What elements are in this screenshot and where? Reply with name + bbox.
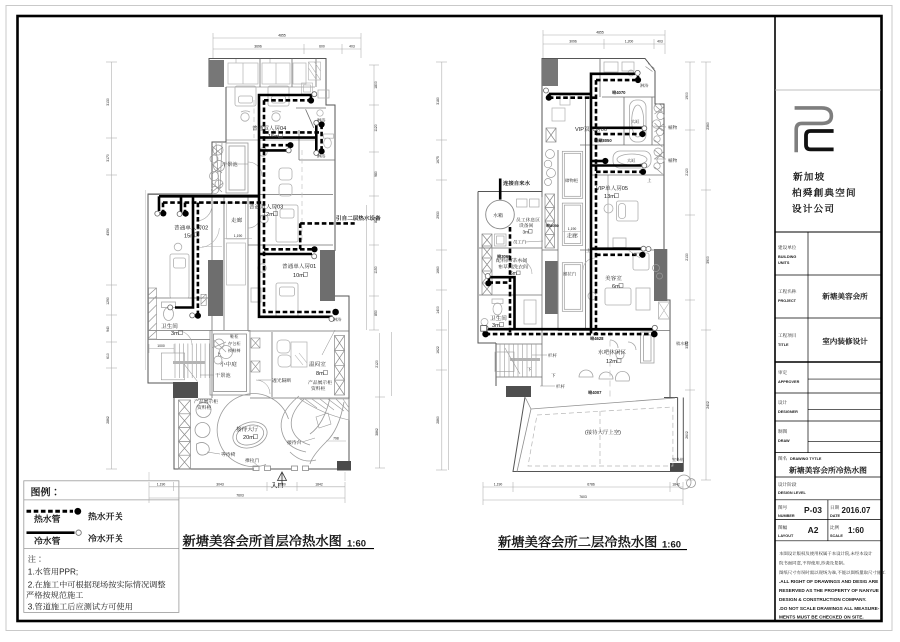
svg-text:2016.07: 2016.07 bbox=[842, 505, 871, 516]
svg-text:P-03: P-03 bbox=[804, 504, 822, 516]
svg-text:798: 798 bbox=[333, 436, 339, 441]
svg-text:DESIGNER: DESIGNER bbox=[778, 410, 798, 415]
svg-text:工程名称: 工程名称 bbox=[778, 289, 797, 295]
svg-text:下: 下 bbox=[551, 373, 556, 379]
svg-text:600: 600 bbox=[319, 44, 325, 49]
svg-text:上: 上 bbox=[586, 248, 591, 254]
svg-text:RESERVED AS THE PROPERTY OF NA: RESERVED AS THE PROPERTY OF NANYUE bbox=[779, 588, 879, 594]
svg-text:8m: 8m bbox=[316, 369, 324, 377]
svg-text:暗4007: 暗4007 bbox=[588, 390, 602, 396]
svg-text:1600: 1600 bbox=[278, 481, 286, 486]
svg-text:1842: 1842 bbox=[315, 481, 323, 486]
svg-text:3332: 3332 bbox=[684, 341, 689, 349]
svg-text:PROJECT: PROJECT bbox=[778, 299, 797, 304]
svg-text:鞋柜: 鞋柜 bbox=[230, 334, 239, 340]
svg-text:2860: 2860 bbox=[435, 416, 440, 424]
svg-text:VIP双人房06: VIP双人房06 bbox=[575, 125, 607, 133]
svg-text:980: 980 bbox=[373, 171, 378, 177]
svg-text:存包柜: 存包柜 bbox=[228, 341, 241, 347]
svg-text:图幅: 图幅 bbox=[778, 525, 788, 531]
svg-text:3862: 3862 bbox=[374, 428, 379, 436]
svg-text:普通单人房01: 普通单人房01 bbox=[282, 262, 316, 270]
svg-text:柏舜創典空间: 柏舜創典空间 bbox=[792, 185, 857, 199]
svg-text:普通双人房04: 普通双人房04 bbox=[252, 124, 286, 132]
svg-text:干景池: 干景池 bbox=[222, 161, 238, 168]
svg-text:推拉门: 推拉门 bbox=[245, 457, 260, 464]
svg-text:403: 403 bbox=[657, 39, 663, 44]
svg-text:2120: 2120 bbox=[374, 360, 379, 368]
svg-text:2360: 2360 bbox=[705, 122, 710, 130]
svg-text:7603: 7603 bbox=[579, 494, 587, 499]
svg-text:1:60: 1:60 bbox=[662, 537, 681, 551]
svg-text:淋浴: 淋浴 bbox=[640, 83, 649, 89]
svg-text:4855: 4855 bbox=[278, 33, 286, 38]
svg-text:3.管道施工后应测试方可使用: 3.管道施工后应测试方可使用 bbox=[28, 601, 133, 612]
svg-text:走廊: 走廊 bbox=[231, 216, 243, 224]
svg-text:暗8050: 暗8050 bbox=[546, 223, 560, 229]
svg-text:15m: 15m bbox=[268, 132, 279, 140]
svg-text:12m: 12m bbox=[263, 210, 274, 218]
svg-text:3m: 3m bbox=[523, 229, 530, 236]
svg-text:3696: 3696 bbox=[254, 44, 262, 49]
svg-text:DESIGN & CONSTRUCTION COMPANY.: DESIGN & CONSTRUCTION COMPANY. bbox=[779, 597, 867, 603]
svg-text:4390: 4390 bbox=[105, 228, 110, 236]
svg-text:4855: 4855 bbox=[596, 30, 604, 35]
svg-text:.DO NOT SCALE DRAWINGS ALL MEA: .DO NOT SCALE DRAWINGS ALL MEASURE- bbox=[779, 606, 880, 612]
svg-text:BUILDING: BUILDING bbox=[778, 255, 796, 260]
svg-text:1,190: 1,190 bbox=[494, 482, 503, 487]
svg-text:1,200: 1,200 bbox=[625, 39, 634, 44]
svg-text:1290: 1290 bbox=[105, 297, 110, 305]
svg-text:940: 940 bbox=[105, 326, 110, 332]
svg-text:暗4070: 暗4070 bbox=[612, 90, 626, 96]
svg-text:室内装修设计: 室内装修设计 bbox=[822, 336, 868, 347]
svg-text:审定: 审定 bbox=[778, 370, 788, 376]
svg-text:MENTS MUST BE CHECKED ON SITE.: MENTS MUST BE CHECKED ON SITE. bbox=[779, 615, 864, 621]
svg-text:暗3060: 暗3060 bbox=[497, 254, 511, 260]
svg-text:13m: 13m bbox=[604, 192, 615, 200]
svg-text:热水开关: 热水开关 bbox=[88, 510, 123, 523]
svg-text:2930: 2930 bbox=[435, 211, 440, 219]
svg-text:15m: 15m bbox=[184, 231, 195, 239]
svg-text:建设单位: 建设单位 bbox=[778, 245, 797, 251]
svg-text:2862: 2862 bbox=[105, 416, 110, 424]
svg-text:日期: 日期 bbox=[830, 505, 840, 511]
svg-text:美容室: 美容室 bbox=[605, 274, 622, 282]
svg-text:上: 上 bbox=[647, 178, 652, 184]
svg-text:淋浴: 淋浴 bbox=[317, 118, 326, 124]
svg-text:800: 800 bbox=[373, 217, 378, 223]
svg-text:栏杆: 栏杆 bbox=[556, 384, 566, 390]
svg-text:工程项目: 工程项目 bbox=[778, 333, 796, 339]
svg-text:6m: 6m bbox=[510, 270, 517, 277]
svg-text:3096: 3096 bbox=[569, 39, 577, 44]
svg-text:DRAWING TYTLE: DRAWING TYTLE bbox=[790, 457, 822, 462]
svg-text:水吧休闲区: 水吧休闲区 bbox=[598, 348, 626, 356]
svg-text:大缸: 大缸 bbox=[631, 119, 640, 125]
svg-text:下: 下 bbox=[527, 367, 532, 373]
svg-text:DRAW: DRAW bbox=[778, 439, 790, 444]
svg-text:2402: 2402 bbox=[705, 401, 710, 409]
svg-text:热水管: 热水管 bbox=[34, 512, 61, 525]
svg-text:10m: 10m bbox=[293, 271, 304, 279]
svg-text:TITLE: TITLE bbox=[778, 343, 789, 348]
svg-text:1,190: 1,190 bbox=[568, 226, 577, 231]
svg-text:资料柜: 资料柜 bbox=[311, 385, 326, 392]
svg-text:1120: 1120 bbox=[373, 124, 378, 131]
svg-text:12m: 12m bbox=[606, 357, 617, 365]
svg-text:设计: 设计 bbox=[778, 400, 788, 406]
svg-text:3180: 3180 bbox=[435, 97, 440, 105]
svg-text:1622: 1622 bbox=[435, 346, 440, 354]
svg-text:403: 403 bbox=[349, 44, 355, 49]
svg-text:DESIGN LEVEL: DESIGN LEVEL bbox=[778, 491, 807, 496]
svg-text:上: 上 bbox=[216, 351, 221, 358]
svg-text:资料柜: 资料柜 bbox=[197, 404, 212, 411]
svg-text:1842: 1842 bbox=[672, 482, 680, 487]
svg-text:淋浴: 淋浴 bbox=[317, 154, 326, 160]
svg-text:UNITS: UNITS bbox=[778, 261, 790, 266]
svg-text:.ALL RIGHT OF DRAWINGS AND DES: .ALL RIGHT OF DRAWINGS AND DESIG ARE bbox=[779, 579, 878, 585]
svg-text:APPROVER: APPROVER bbox=[778, 380, 800, 385]
svg-text:新塘美容会所二层冷热水图: 新塘美容会所二层冷热水图 bbox=[498, 532, 657, 551]
svg-text:1900: 1900 bbox=[684, 92, 689, 100]
svg-text:DATE: DATE bbox=[830, 514, 841, 519]
svg-text:普通单人房02: 普通单人房02 bbox=[174, 224, 208, 232]
svg-text:透光隔断: 透光隔断 bbox=[272, 377, 291, 384]
svg-text:新加坡: 新加坡 bbox=[793, 169, 825, 183]
svg-text:接待台: 接待台 bbox=[287, 439, 302, 446]
svg-text:SCALE: SCALE bbox=[830, 534, 843, 539]
svg-text:院书面同意,不得使用,抄袭及复制。: 院书面同意,不得使用,抄袭及复制。 bbox=[779, 561, 847, 567]
svg-text:1.水管用PPR;: 1.水管用PPR; bbox=[28, 567, 79, 578]
svg-text:1675: 1675 bbox=[435, 156, 440, 164]
svg-text:接待大厅: 接待大厅 bbox=[236, 425, 259, 433]
svg-text:(接待大厅上空): (接待大厅上空) bbox=[585, 428, 621, 436]
svg-text:员工门: 员工门 bbox=[513, 240, 527, 246]
svg-text:暗4628: 暗4628 bbox=[590, 336, 604, 342]
svg-text:2602: 2602 bbox=[684, 431, 689, 439]
svg-text:水箱: 水箱 bbox=[493, 212, 503, 219]
svg-text:本图设计版权及使用权属于本设计院,未经本设计: 本图设计版权及使用权属于本设计院,未经本设计 bbox=[779, 551, 873, 557]
svg-text:7603: 7603 bbox=[236, 493, 244, 498]
svg-text:连接自来水: 连接自来水 bbox=[503, 179, 531, 187]
svg-text:1:60: 1:60 bbox=[848, 525, 865, 536]
svg-text:3043: 3043 bbox=[216, 481, 224, 486]
svg-text:610: 610 bbox=[105, 353, 110, 359]
svg-text:NUMBER: NUMBER bbox=[778, 514, 795, 519]
svg-text:1000: 1000 bbox=[157, 343, 165, 348]
svg-text:冷水开关: 冷水开关 bbox=[88, 532, 123, 545]
svg-text:VIP单人房05: VIP单人房05 bbox=[596, 184, 628, 192]
svg-text:1150: 1150 bbox=[373, 266, 378, 273]
svg-text:新塘美容会所首层冷热水图: 新塘美容会所首层冷热水图 bbox=[183, 531, 342, 550]
svg-text:等待椅: 等待椅 bbox=[221, 451, 236, 458]
svg-text:小中庭: 小中庭 bbox=[220, 360, 237, 368]
svg-text:暗藏8050: 暗藏8050 bbox=[594, 138, 612, 144]
svg-text:LAYOUT: LAYOUT bbox=[778, 534, 794, 539]
svg-text:推拉门: 推拉门 bbox=[563, 272, 577, 278]
svg-text:设计阶段: 设计阶段 bbox=[778, 482, 797, 488]
svg-text:干景池: 干景池 bbox=[215, 372, 231, 379]
svg-text:3m: 3m bbox=[171, 329, 179, 337]
svg-text:换鞋椅: 换鞋椅 bbox=[228, 348, 241, 354]
svg-text:3130: 3130 bbox=[105, 98, 110, 106]
svg-text:新塘美容会所: 新塘美容会所 bbox=[822, 291, 868, 302]
svg-text:温闷室: 温闷室 bbox=[309, 360, 326, 368]
svg-text:2130: 2130 bbox=[684, 253, 689, 261]
svg-text:新塘美容会所冷热水图: 新塘美容会所冷热水图 bbox=[789, 465, 867, 476]
svg-text:淋浴: 淋浴 bbox=[333, 317, 342, 323]
svg-text:1800: 1800 bbox=[373, 81, 378, 89]
svg-text:植物: 植物 bbox=[668, 158, 678, 164]
svg-text:A2: A2 bbox=[808, 524, 819, 536]
svg-text:冷水管: 冷水管 bbox=[34, 534, 61, 547]
svg-text:6786: 6786 bbox=[587, 482, 595, 487]
svg-text:走廊: 走廊 bbox=[567, 232, 579, 240]
svg-text:2120: 2120 bbox=[684, 168, 689, 176]
svg-text:大缸: 大缸 bbox=[627, 158, 636, 164]
svg-text:注：: 注： bbox=[28, 554, 44, 565]
svg-text:图纸尺寸有误时需以现场为准,不能以图纸量取尺寸施工: 图纸尺寸有误时需以现场为准,不能以图纸量取尺寸施工 bbox=[779, 570, 886, 576]
svg-text:严格按规范施工: 严格按规范施工 bbox=[26, 590, 83, 601]
svg-text:1400: 1400 bbox=[435, 306, 440, 314]
svg-text:850: 850 bbox=[373, 310, 378, 316]
svg-text:比例: 比例 bbox=[830, 525, 840, 531]
svg-text:3m: 3m bbox=[492, 321, 500, 329]
svg-text:图例：: 图例： bbox=[31, 484, 61, 499]
svg-text:制图: 制图 bbox=[778, 429, 788, 435]
svg-text:1660: 1660 bbox=[435, 266, 440, 274]
svg-text:设计公司: 设计公司 bbox=[792, 201, 835, 215]
svg-text:栏杆: 栏杆 bbox=[548, 353, 558, 359]
svg-text:图号: 图号 bbox=[778, 505, 788, 511]
svg-text:室外机: 室外机 bbox=[672, 457, 684, 463]
svg-text:图名: 图名 bbox=[778, 456, 788, 462]
svg-text:储物柜: 储物柜 bbox=[565, 178, 579, 184]
svg-text:3900: 3900 bbox=[705, 256, 710, 264]
svg-text:1:60: 1:60 bbox=[347, 536, 366, 550]
svg-text:植物: 植物 bbox=[668, 125, 678, 131]
svg-text:1,190: 1,190 bbox=[234, 233, 243, 238]
svg-text:1,190: 1,190 bbox=[157, 481, 166, 486]
svg-text:3170: 3170 bbox=[105, 154, 110, 162]
svg-text:20m: 20m bbox=[243, 433, 254, 441]
